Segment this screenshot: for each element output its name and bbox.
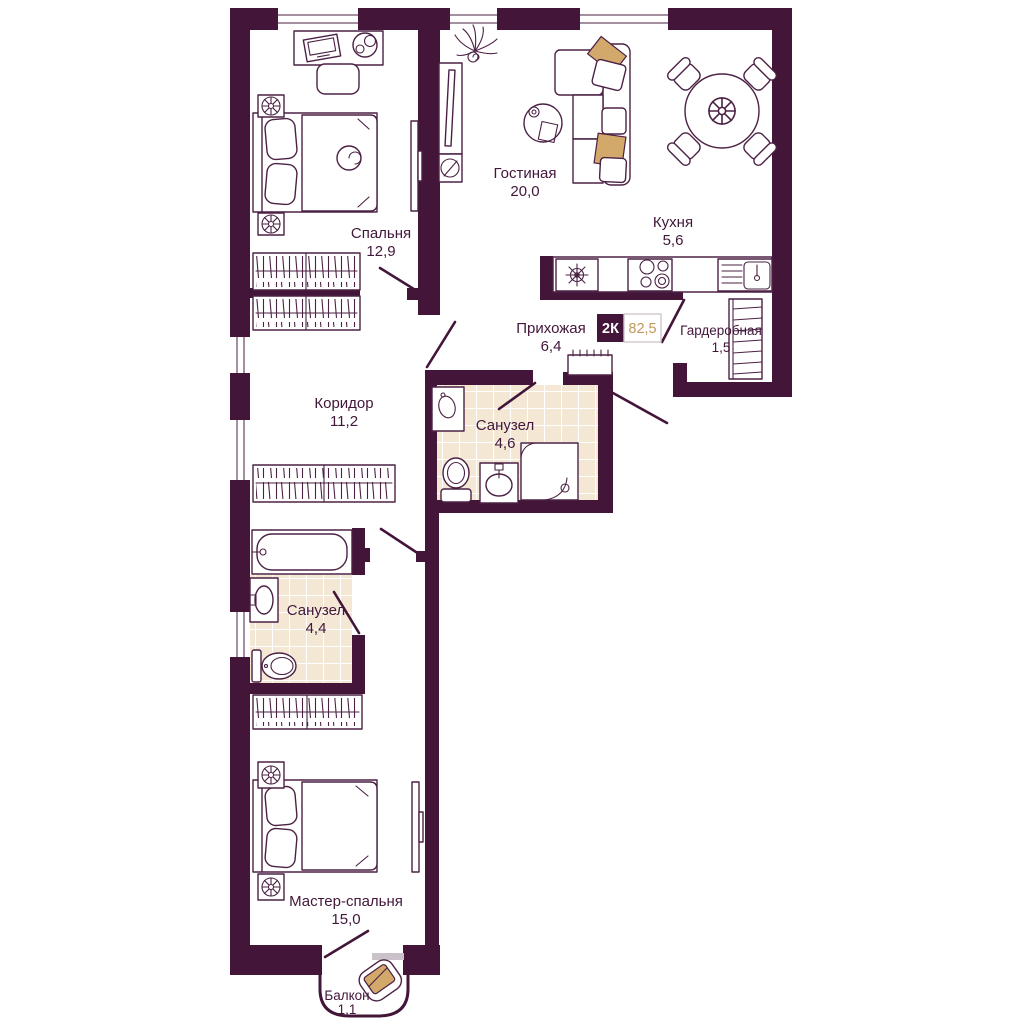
room-label: Санузел: [476, 417, 534, 434]
room-master-bedroom: Мастер-спальня 15,0: [253, 762, 423, 928]
window-icon: [230, 612, 250, 657]
nightstand-icon: [258, 762, 284, 788]
room-area: 4,4: [306, 620, 327, 637]
entrance-door-swing-icon: [613, 393, 667, 423]
tv-icon: [412, 782, 423, 872]
nightstand-icon: [258, 874, 284, 900]
bed-icon: [253, 780, 377, 872]
shower-icon: [521, 443, 578, 500]
closet-shelves-icon: [729, 299, 762, 379]
room-area: 4,6: [495, 435, 516, 452]
stove-icon: [628, 259, 672, 291]
room-label: Прихожая: [516, 320, 586, 337]
room-label: Кухня: [653, 214, 693, 231]
plan-badge: 2К 82,5: [597, 314, 661, 342]
balcony-door-swing-icon: [325, 931, 368, 957]
desk-accessory-icon: [353, 33, 377, 57]
room-area: 20,0: [510, 183, 539, 200]
window-icon: [278, 8, 358, 30]
badge-total-area: 82,5: [628, 321, 656, 337]
nightstand-icon: [258, 213, 284, 235]
plant-icon: [455, 25, 497, 62]
room-area: 5,6: [663, 232, 684, 249]
sofa-icon: [555, 36, 630, 185]
wardrobe-icon: [253, 465, 395, 502]
room-walkin-closet: Гардеробная 1,5: [680, 299, 762, 379]
door-swing-icon: [381, 529, 422, 556]
room-area: 1,5: [712, 340, 731, 355]
window-icon: [230, 420, 250, 480]
room-area: 6,4: [541, 338, 562, 355]
room-label: Коридор: [314, 395, 373, 412]
room-kitchen: Кухня 5,6: [553, 214, 772, 292]
speaker-icon: [439, 154, 462, 182]
room-area: 15,0: [331, 911, 360, 928]
tv-console-icon: [439, 63, 462, 154]
chair-icon: [317, 64, 359, 94]
room-label: Мастер-спальня: [289, 893, 403, 910]
wardrobe-icon: [253, 296, 360, 330]
shoe-rack-icon: [568, 350, 612, 375]
room-label: Гостиная: [494, 165, 557, 182]
door-swing-icon: [380, 268, 417, 291]
room-label: Санузел: [287, 602, 345, 619]
floor-plan: Спальня 12,9: [0, 0, 1024, 1024]
room-hallway: Прихожая 6,4 2К 82,5: [516, 314, 661, 375]
balcony-glass-sill: [372, 953, 404, 960]
nightstand-icon: [258, 95, 284, 117]
bed-icon: [253, 113, 377, 212]
wardrobe-icon: [253, 695, 362, 729]
room-label: Гардеробная: [680, 323, 762, 338]
washbasin-icon: [480, 463, 518, 503]
toilet-icon: [441, 458, 471, 502]
room-area: 11,2: [330, 413, 358, 430]
room-bedroom: Спальня 12,9: [253, 31, 422, 260]
dining-table-icon: [666, 56, 778, 167]
room-label: Балкон: [324, 988, 369, 1003]
corner-sink-icon: [432, 387, 464, 431]
wardrobe-icon: [253, 253, 360, 290]
window-icon: [230, 337, 250, 373]
badge-type-label: 2К: [602, 321, 619, 337]
door-swing-icon: [427, 322, 455, 367]
kitchen-sink-icon: [718, 259, 772, 291]
room-living: Гостиная 20,0: [439, 25, 778, 200]
room-corridor: Коридор 11,2: [314, 395, 373, 430]
bathtub-icon: [252, 530, 352, 574]
floor-plan-canvas: Спальня 12,9: [0, 0, 1024, 1024]
window-icon: [580, 8, 668, 30]
room-label: Спальня: [351, 225, 411, 242]
fridge-icon: [556, 259, 598, 291]
room-area: 1,1: [338, 1002, 357, 1017]
coffee-table-icon: [524, 104, 562, 142]
snowflake-icon: [566, 264, 588, 286]
washbasin-icon: [250, 578, 278, 622]
room-balcony: Балкон 1,1: [324, 956, 405, 1017]
room-area: 12,9: [366, 243, 395, 260]
